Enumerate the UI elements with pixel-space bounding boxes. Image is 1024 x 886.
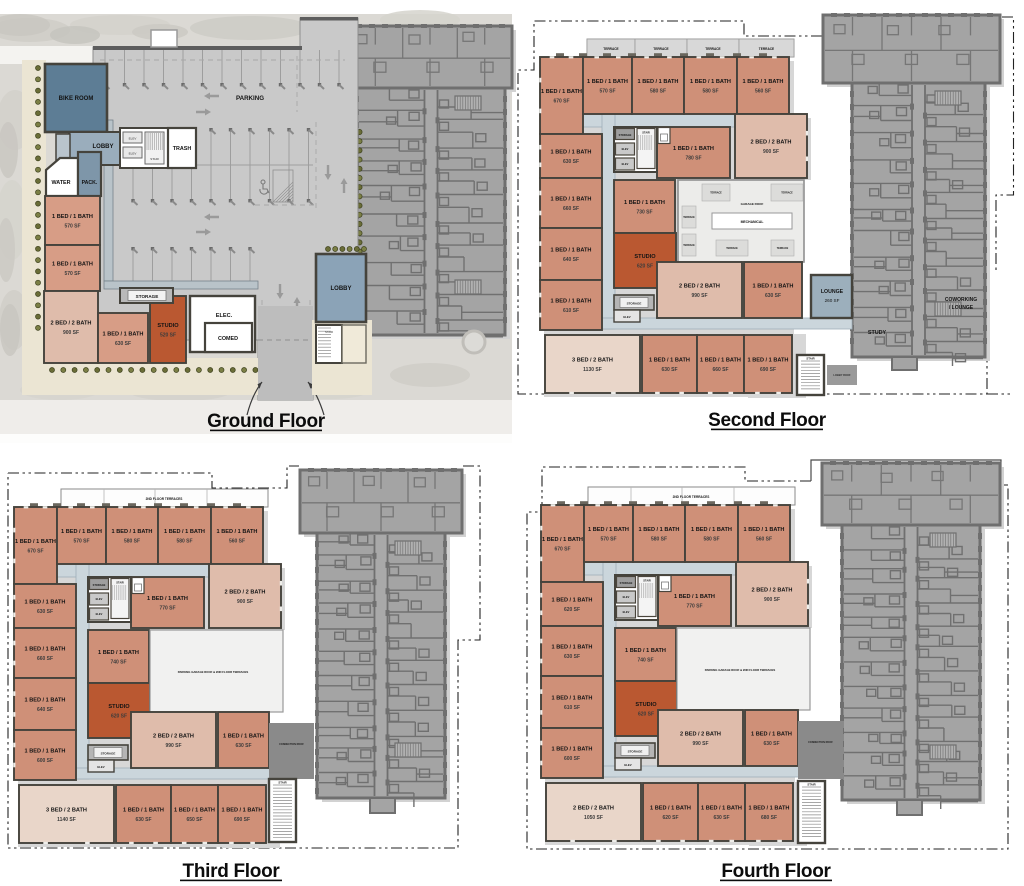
svg-text:1 BED / 1 BATH: 1 BED / 1 BATH bbox=[700, 358, 741, 364]
svg-text:Ground Floor: Ground Floor bbox=[207, 411, 326, 432]
svg-text:570 SF: 570 SF bbox=[73, 539, 89, 545]
svg-text:ELEV: ELEV bbox=[623, 315, 630, 319]
svg-text:STORAGE: STORAGE bbox=[101, 752, 116, 756]
svg-text:630 SF: 630 SF bbox=[37, 609, 53, 615]
svg-text:1 BED / 1 BATH: 1 BED / 1 BATH bbox=[638, 79, 679, 85]
svg-text:640 SF: 640 SF bbox=[563, 257, 579, 263]
svg-text:260 SF: 260 SF bbox=[825, 298, 840, 303]
svg-text:1 BED / 1 BATH: 1 BED / 1 BATH bbox=[552, 645, 593, 651]
svg-text:STAIR: STAIR bbox=[806, 357, 814, 361]
svg-text:1 BED / 1 BATH: 1 BED / 1 BATH bbox=[25, 749, 66, 755]
svg-text:1 BED / 1 BATH: 1 BED / 1 BATH bbox=[691, 527, 732, 533]
svg-text:Third Floor: Third Floor bbox=[183, 861, 281, 882]
svg-text:1 BED / 1 BATH: 1 BED / 1 BATH bbox=[744, 527, 785, 533]
svg-text:TERRACE: TERRACE bbox=[759, 47, 774, 51]
svg-text:1 BED / 1 BATH: 1 BED / 1 BATH bbox=[542, 537, 583, 543]
svg-text:1 BED / 1 BATH: 1 BED / 1 BATH bbox=[217, 529, 258, 535]
svg-text:STAIR: STAIR bbox=[150, 157, 159, 161]
svg-text:STUDY: STUDY bbox=[868, 330, 887, 336]
svg-text:630 SF: 630 SF bbox=[763, 741, 779, 747]
svg-text:STUDIO: STUDIO bbox=[108, 704, 130, 710]
svg-text:COWORKING: COWORKING bbox=[945, 297, 977, 303]
svg-text:1130 SF: 1130 SF bbox=[583, 367, 602, 373]
svg-text:520 SF: 520 SF bbox=[160, 333, 176, 339]
svg-text:570 SF: 570 SF bbox=[64, 224, 80, 230]
svg-text:STORAGE: STORAGE bbox=[627, 302, 642, 306]
svg-text:630 SF: 630 SF bbox=[713, 815, 729, 821]
svg-text:900 SF: 900 SF bbox=[63, 330, 79, 336]
svg-text:ELEV: ELEV bbox=[129, 152, 137, 156]
svg-text:570 SF: 570 SF bbox=[64, 271, 80, 277]
svg-text:1 BED / 1 BATH: 1 BED / 1 BATH bbox=[552, 598, 593, 604]
svg-text:560 SF: 560 SF bbox=[756, 537, 772, 543]
svg-text:630 SF: 630 SF bbox=[135, 817, 151, 823]
svg-text:620 SF: 620 SF bbox=[111, 714, 127, 720]
svg-text:770 SF: 770 SF bbox=[159, 606, 175, 612]
svg-text:690 SF: 690 SF bbox=[234, 817, 250, 823]
svg-text:680 SF: 680 SF bbox=[761, 815, 777, 821]
svg-text:ELEV: ELEV bbox=[623, 595, 630, 599]
svg-text:PARKING: PARKING bbox=[236, 95, 264, 102]
svg-text:1 BED / 1 BATH: 1 BED / 1 BATH bbox=[701, 806, 742, 812]
svg-text:ELEV: ELEV bbox=[129, 137, 137, 141]
svg-text:670 SF: 670 SF bbox=[553, 99, 569, 105]
svg-text:/ LOUNGE: / LOUNGE bbox=[949, 305, 974, 311]
svg-text:610 SF: 610 SF bbox=[563, 308, 579, 314]
svg-text:1 BED / 1 BATH: 1 BED / 1 BATH bbox=[551, 150, 592, 156]
svg-text:1 BED / 1 BATH: 1 BED / 1 BATH bbox=[164, 529, 205, 535]
svg-text:1 BED / 1 BATH: 1 BED / 1 BATH bbox=[15, 539, 56, 545]
svg-text:630 SF: 630 SF bbox=[661, 367, 677, 373]
svg-text:2 BED / 2 BATH: 2 BED / 2 BATH bbox=[573, 806, 614, 812]
svg-text:TERRACE: TERRACE bbox=[603, 47, 618, 51]
svg-text:1 BED / 1 BATH: 1 BED / 1 BATH bbox=[674, 594, 715, 600]
svg-text:1 BED / 1 BATH: 1 BED / 1 BATH bbox=[25, 698, 66, 704]
svg-text:660 SF: 660 SF bbox=[563, 206, 579, 212]
svg-text:PARKING GARAGE ROOF & 2ND FLOO: PARKING GARAGE ROOF & 2ND FLOOR TERRACES bbox=[705, 668, 776, 672]
svg-text:1 BED / 1 BATH: 1 BED / 1 BATH bbox=[690, 79, 731, 85]
svg-text:580 SF: 580 SF bbox=[702, 89, 718, 95]
svg-text:1 BED / 1 BATH: 1 BED / 1 BATH bbox=[753, 284, 794, 290]
svg-text:1 BED / 1 BATH: 1 BED / 1 BATH bbox=[625, 648, 666, 654]
svg-text:900 SF: 900 SF bbox=[764, 597, 780, 603]
svg-text:580 SF: 580 SF bbox=[650, 89, 666, 95]
svg-text:740 SF: 740 SF bbox=[110, 660, 126, 666]
svg-text:STORAGE: STORAGE bbox=[136, 294, 159, 299]
svg-text:ELEV: ELEV bbox=[96, 597, 103, 601]
svg-text:900 SF: 900 SF bbox=[763, 149, 779, 155]
svg-text:1 BED / 1 BATH: 1 BED / 1 BATH bbox=[751, 732, 792, 738]
svg-text:1 BED / 1 BATH: 1 BED / 1 BATH bbox=[25, 647, 66, 653]
svg-text:COMED: COMED bbox=[218, 336, 238, 342]
svg-text:STORAGE: STORAGE bbox=[628, 750, 643, 754]
svg-text:1 BED / 1 BATH: 1 BED / 1 BATH bbox=[52, 214, 93, 220]
svg-text:STAIR: STAIR bbox=[116, 581, 124, 585]
svg-text:TERRACE: TERRACE bbox=[777, 247, 789, 250]
svg-text:STAIR: STAIR bbox=[642, 131, 650, 135]
svg-text:650 SF: 650 SF bbox=[186, 817, 202, 823]
svg-text:STUDIO: STUDIO bbox=[635, 702, 657, 708]
svg-text:2 BED / 2 BATH: 2 BED / 2 BATH bbox=[680, 732, 721, 738]
svg-text:660 SF: 660 SF bbox=[712, 367, 728, 373]
svg-text:2 BED / 2 BATH: 2 BED / 2 BATH bbox=[751, 140, 792, 146]
svg-text:1 BED / 1 BATH: 1 BED / 1 BATH bbox=[650, 806, 691, 812]
svg-text:1 BED / 1 BATH: 1 BED / 1 BATH bbox=[174, 808, 215, 814]
svg-text:1 BED / 1 BATH: 1 BED / 1 BATH bbox=[61, 529, 102, 535]
svg-text:LOBBY: LOBBY bbox=[331, 286, 352, 292]
svg-text:STORAGE: STORAGE bbox=[620, 581, 633, 585]
svg-text:630 SF: 630 SF bbox=[564, 654, 580, 660]
svg-text:740 SF: 740 SF bbox=[637, 658, 653, 664]
svg-text:TERRACE: TERRACE bbox=[781, 192, 793, 195]
svg-text:1 BED / 1 BATH: 1 BED / 1 BATH bbox=[103, 332, 144, 338]
svg-text:620 SF: 620 SF bbox=[637, 264, 653, 270]
svg-text:1 BED / 1 BATH: 1 BED / 1 BATH bbox=[123, 808, 164, 814]
svg-text:2 BED / 2 BATH: 2 BED / 2 BATH bbox=[225, 590, 266, 596]
svg-text:STORAGE: STORAGE bbox=[619, 133, 632, 137]
svg-text:LOBBY ROOF: LOBBY ROOF bbox=[833, 373, 851, 377]
svg-text:1 BED / 1 BATH: 1 BED / 1 BATH bbox=[147, 596, 188, 602]
svg-text:MECHANICAL: MECHANICAL bbox=[741, 220, 764, 224]
svg-text:670 SF: 670 SF bbox=[554, 547, 570, 553]
svg-text:CONNECTION ROOF: CONNECTION ROOF bbox=[808, 741, 833, 744]
svg-text:LOUNGE: LOUNGE bbox=[821, 289, 844, 295]
svg-text:1 BED / 1 BATH: 1 BED / 1 BATH bbox=[749, 806, 790, 812]
svg-text:1 BED / 1 BATH: 1 BED / 1 BATH bbox=[551, 197, 592, 203]
svg-text:730 SF: 730 SF bbox=[636, 210, 652, 216]
svg-text:570 SF: 570 SF bbox=[600, 537, 616, 543]
svg-text:560 SF: 560 SF bbox=[229, 539, 245, 545]
svg-text:570 SF: 570 SF bbox=[599, 89, 615, 95]
svg-text:1 BED / 1 BATH: 1 BED / 1 BATH bbox=[25, 600, 66, 606]
svg-text:630 SF: 630 SF bbox=[115, 341, 131, 347]
svg-text:1 BED / 1 BATH: 1 BED / 1 BATH bbox=[551, 299, 592, 305]
svg-text:ELEV: ELEV bbox=[96, 612, 103, 616]
svg-text:1 BED / 1 BATH: 1 BED / 1 BATH bbox=[552, 747, 593, 753]
svg-text:610 SF: 610 SF bbox=[564, 705, 580, 711]
svg-text:ELEV: ELEV bbox=[624, 763, 631, 767]
svg-text:1 BED / 1 BATH: 1 BED / 1 BATH bbox=[743, 79, 784, 85]
svg-text:2 BED / 2 BATH: 2 BED / 2 BATH bbox=[679, 284, 720, 290]
svg-text:3 BED / 2 BATH: 3 BED / 2 BATH bbox=[46, 808, 87, 814]
svg-text:TERRACE: TERRACE bbox=[705, 47, 720, 51]
svg-text:STAIR: STAIR bbox=[807, 783, 815, 787]
svg-text:2ND FLOOR TERRACES: 2ND FLOOR TERRACES bbox=[146, 497, 183, 501]
svg-text:1 BED / 1 BATH: 1 BED / 1 BATH bbox=[223, 734, 264, 740]
svg-text:WATER: WATER bbox=[51, 180, 70, 186]
svg-text:2 BED / 2 BATH: 2 BED / 2 BATH bbox=[153, 734, 194, 740]
svg-text:1 BED / 1 BATH: 1 BED / 1 BATH bbox=[112, 529, 153, 535]
svg-text:670 SF: 670 SF bbox=[27, 549, 43, 555]
svg-text:580 SF: 580 SF bbox=[176, 539, 192, 545]
svg-text:TERRACE: TERRACE bbox=[683, 244, 695, 247]
svg-text:2 BED / 2 BATH: 2 BED / 2 BATH bbox=[51, 321, 92, 327]
svg-text:TERRACE: TERRACE bbox=[683, 216, 695, 219]
svg-text:PACK.: PACK. bbox=[82, 180, 98, 186]
svg-text:1 BED / 1 BATH: 1 BED / 1 BATH bbox=[639, 527, 680, 533]
svg-text:GARAGE ROOF: GARAGE ROOF bbox=[741, 202, 764, 206]
svg-text:630 SF: 630 SF bbox=[765, 293, 781, 299]
svg-text:Fourth Floor: Fourth Floor bbox=[721, 861, 831, 882]
svg-text:ELEV: ELEV bbox=[622, 162, 629, 166]
svg-text:770 SF: 770 SF bbox=[686, 604, 702, 610]
svg-text:620 SF: 620 SF bbox=[564, 607, 580, 613]
svg-text:990 SF: 990 SF bbox=[691, 293, 707, 299]
svg-text:630 SF: 630 SF bbox=[563, 159, 579, 165]
svg-text:620 SF: 620 SF bbox=[662, 815, 678, 821]
svg-text:1 BED / 1 BATH: 1 BED / 1 BATH bbox=[551, 248, 592, 254]
svg-text:580 SF: 580 SF bbox=[703, 537, 719, 543]
svg-text:1 BED / 1 BATH: 1 BED / 1 BATH bbox=[52, 262, 93, 268]
svg-text:580 SF: 580 SF bbox=[651, 537, 667, 543]
svg-text:780 SF: 780 SF bbox=[685, 156, 701, 162]
svg-text:1 BED / 1 BATH: 1 BED / 1 BATH bbox=[98, 650, 139, 656]
svg-text:690 SF: 690 SF bbox=[760, 367, 776, 373]
svg-text:2ND FLOOR TERRACES: 2ND FLOOR TERRACES bbox=[673, 495, 710, 499]
svg-text:1050 SF: 1050 SF bbox=[584, 815, 603, 821]
svg-text:LOBBY: LOBBY bbox=[93, 144, 114, 150]
svg-text:600 SF: 600 SF bbox=[564, 756, 580, 762]
svg-text:ELEV: ELEV bbox=[622, 147, 629, 151]
svg-text:600 SF: 600 SF bbox=[37, 758, 53, 764]
svg-text:ELEV: ELEV bbox=[623, 610, 630, 614]
svg-text:620 SF: 620 SF bbox=[638, 712, 654, 718]
svg-text:560 SF: 560 SF bbox=[755, 89, 771, 95]
svg-text:BIKE ROOM: BIKE ROOM bbox=[59, 96, 94, 102]
svg-text:660 SF: 660 SF bbox=[37, 656, 53, 662]
svg-text:1 BED / 1 BATH: 1 BED / 1 BATH bbox=[222, 808, 263, 814]
svg-text:STUDIO: STUDIO bbox=[157, 323, 179, 329]
svg-text:1140 SF: 1140 SF bbox=[57, 817, 76, 823]
svg-text:STAIR: STAIR bbox=[325, 330, 333, 334]
svg-text:ELEC.: ELEC. bbox=[216, 313, 233, 319]
svg-text:1 BED / 1 BATH: 1 BED / 1 BATH bbox=[649, 358, 690, 364]
svg-text:STORAGE: STORAGE bbox=[93, 583, 106, 587]
svg-text:1 BED / 1 BATH: 1 BED / 1 BATH bbox=[748, 358, 789, 364]
svg-text:2 BED / 2 BATH: 2 BED / 2 BATH bbox=[752, 588, 793, 594]
svg-text:STAIR: STAIR bbox=[643, 579, 651, 583]
svg-text:TERRACE: TERRACE bbox=[726, 247, 738, 250]
svg-text:990 SF: 990 SF bbox=[692, 741, 708, 747]
svg-text:TRASH: TRASH bbox=[173, 146, 192, 152]
svg-text:1 BED / 1 BATH: 1 BED / 1 BATH bbox=[541, 89, 582, 95]
svg-text:TERRACE: TERRACE bbox=[653, 47, 668, 51]
svg-text:1 BED / 1 BATH: 1 BED / 1 BATH bbox=[587, 79, 628, 85]
svg-text:1 BED / 1 BATH: 1 BED / 1 BATH bbox=[673, 146, 714, 152]
svg-text:580 SF: 580 SF bbox=[124, 539, 140, 545]
svg-text:3 BED / 2 BATH: 3 BED / 2 BATH bbox=[572, 358, 613, 364]
svg-text:Second Floor: Second Floor bbox=[708, 410, 827, 431]
svg-text:STUDIO: STUDIO bbox=[634, 254, 656, 260]
svg-text:ELEV: ELEV bbox=[97, 765, 104, 769]
svg-text:STAIR: STAIR bbox=[278, 781, 286, 785]
svg-text:TERRACE: TERRACE bbox=[710, 192, 722, 195]
svg-text:900 SF: 900 SF bbox=[237, 599, 253, 605]
svg-text:CONNECTION ROOF: CONNECTION ROOF bbox=[279, 743, 304, 746]
svg-text:1 BED / 1 BATH: 1 BED / 1 BATH bbox=[552, 696, 593, 702]
svg-text:630 SF: 630 SF bbox=[235, 743, 251, 749]
svg-text:640 SF: 640 SF bbox=[37, 707, 53, 713]
svg-text:1 BED / 1 BATH: 1 BED / 1 BATH bbox=[588, 527, 629, 533]
svg-text:PARKING GARAGE ROOF & 2ND FLOO: PARKING GARAGE ROOF & 2ND FLOOR TERRACES bbox=[178, 670, 249, 674]
svg-text:990 SF: 990 SF bbox=[165, 743, 181, 749]
svg-text:1 BED / 1 BATH: 1 BED / 1 BATH bbox=[624, 200, 665, 206]
